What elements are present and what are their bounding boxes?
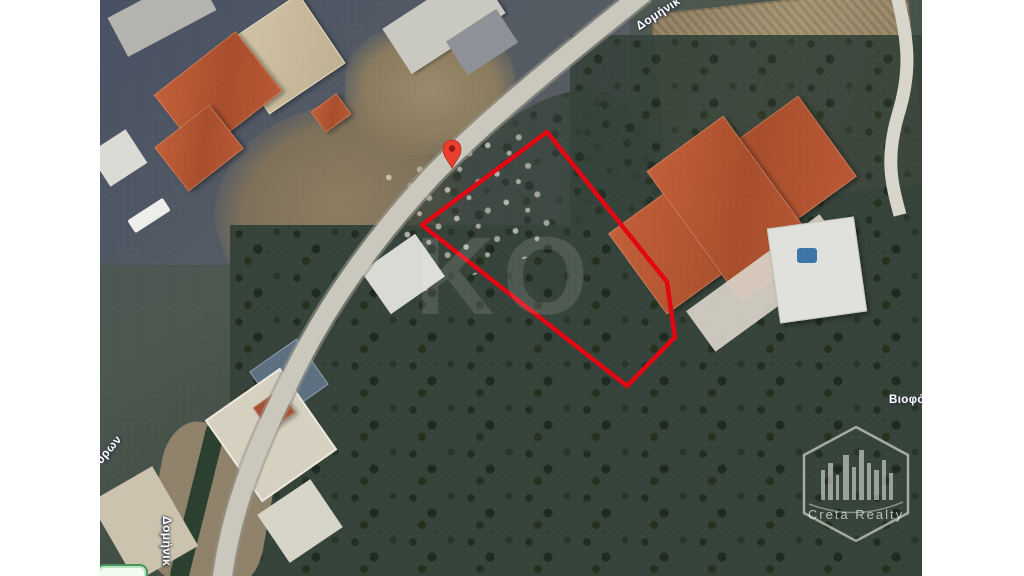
street-label-viofo: Βιοφό (889, 394, 922, 406)
brand-name: Creta Realty (808, 507, 904, 522)
satellite-map[interactable]: Δομήνικ Δομήνικ ύρων Βιοφό KO Creta Real… (100, 0, 922, 576)
map-control-fragment (100, 564, 148, 576)
street-label-dominik-bottom: Δομήνικ (160, 516, 174, 566)
city-skyline-icon (821, 450, 893, 500)
center-watermark: KO (415, 222, 596, 332)
brand-watermark: Creta Realty (790, 424, 922, 574)
property-listing-map-page: Δομήνικ Δομήνικ ύρων Βιοφό KO Creta Real… (0, 0, 1024, 576)
road-right (891, 0, 907, 215)
